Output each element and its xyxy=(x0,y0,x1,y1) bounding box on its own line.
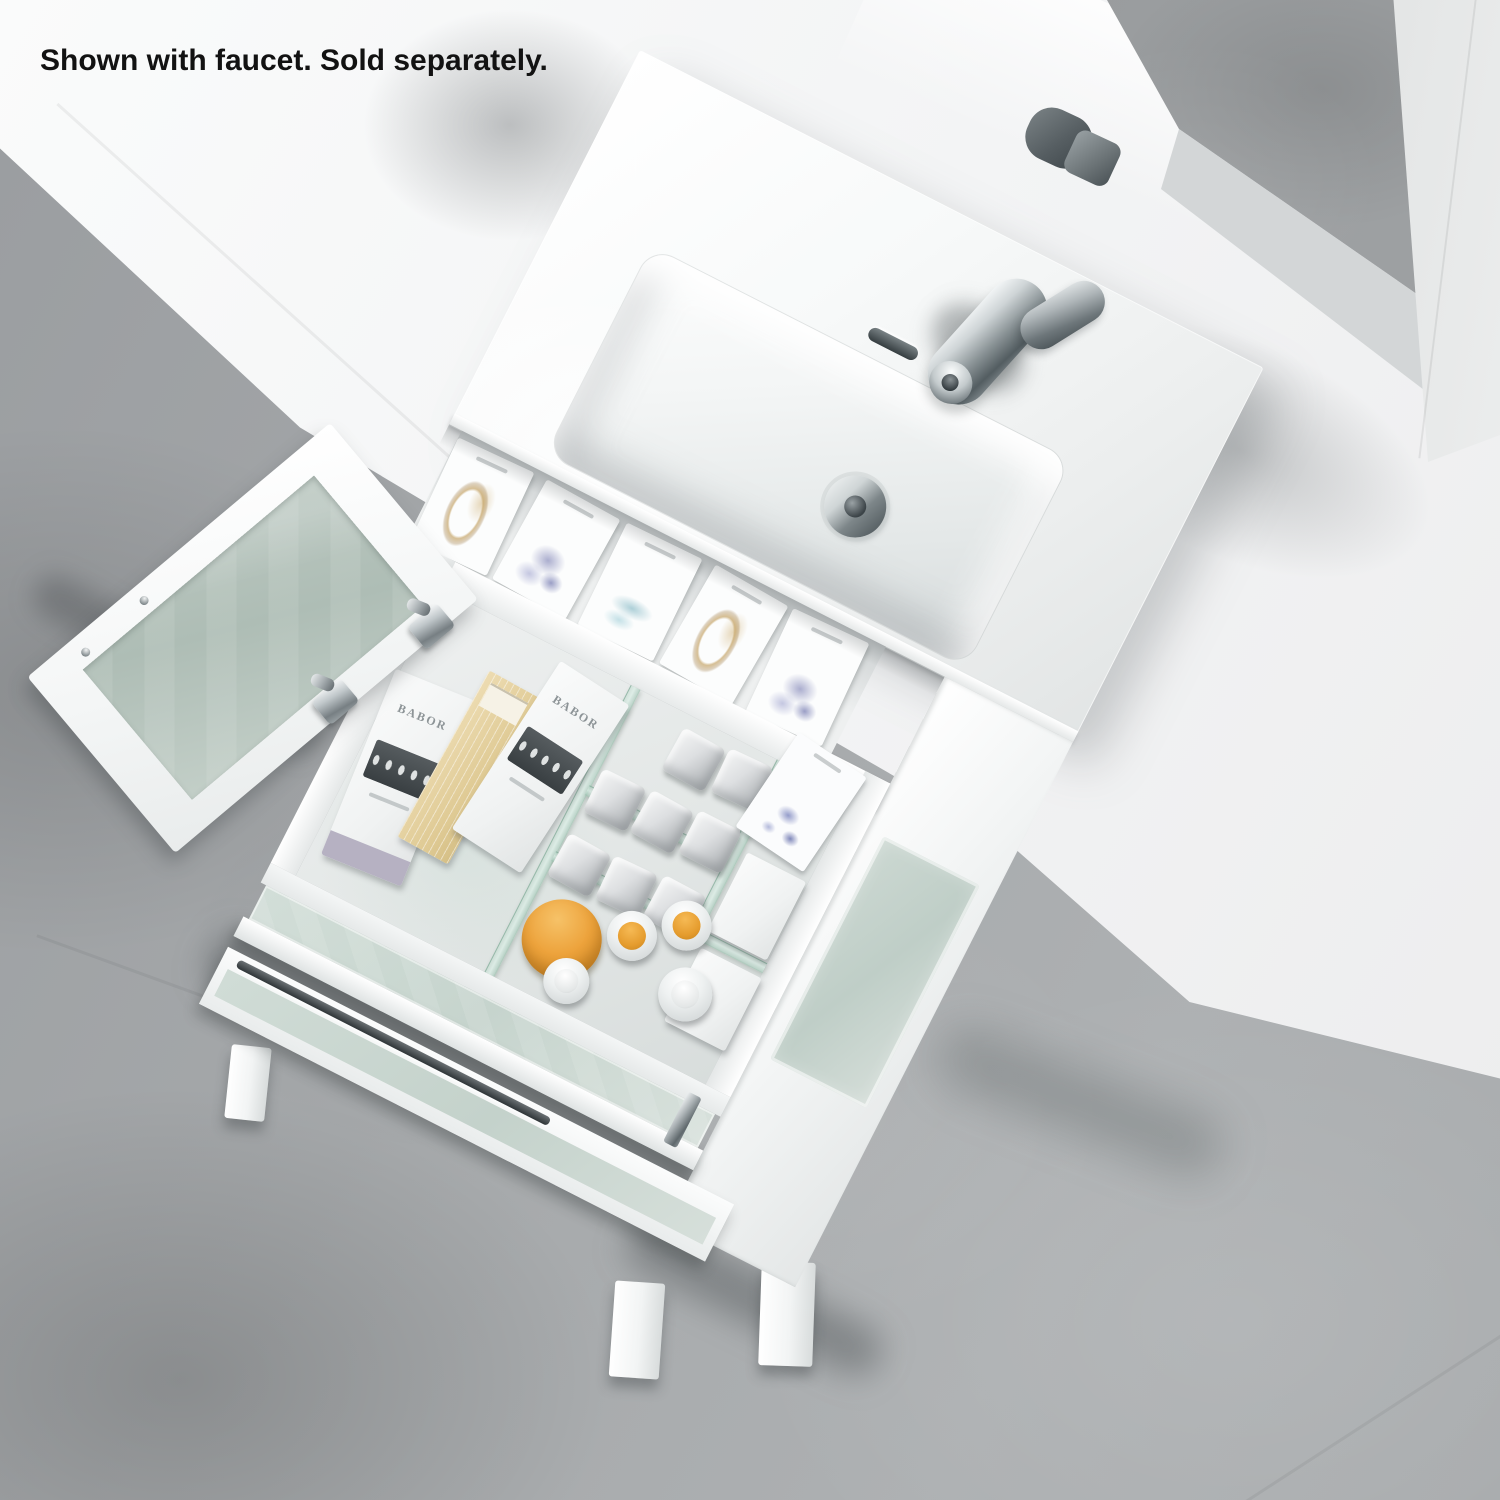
white-cap xyxy=(550,965,582,997)
product-photo: BABOR BABOR xyxy=(0,0,1500,1500)
screw-chrome xyxy=(79,646,92,659)
screw-chrome xyxy=(138,594,151,607)
brand-label: BABOR xyxy=(380,695,465,741)
orange-cap xyxy=(613,917,651,955)
caption-text: Shown with faucet. Sold separately. xyxy=(40,44,548,78)
box-small-text xyxy=(368,792,409,812)
drain-chrome xyxy=(823,474,888,539)
white-cap xyxy=(666,976,704,1014)
orange-cap xyxy=(668,907,706,945)
cabinet-leg xyxy=(609,1280,666,1379)
brand-label: BABOR xyxy=(537,684,614,741)
